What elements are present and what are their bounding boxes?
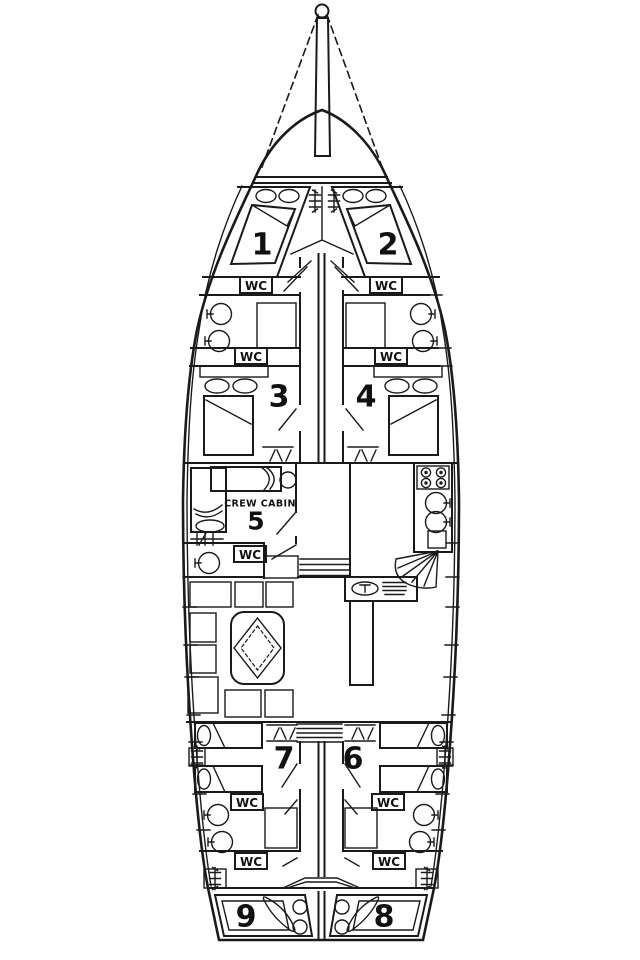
door-swing xyxy=(272,512,296,559)
cabin7-single-bed xyxy=(195,723,262,748)
pillow xyxy=(196,520,224,532)
pillow xyxy=(413,379,437,393)
salon-table xyxy=(231,612,284,684)
cabin-number: 2 xyxy=(378,228,399,263)
stern-steps-chevron xyxy=(283,878,360,888)
cabin-number: 6 xyxy=(343,742,364,777)
wash-basin-icon xyxy=(414,805,439,826)
porthole-icon xyxy=(343,190,363,203)
wash-basin-icon xyxy=(204,805,229,826)
wc-label: WC xyxy=(236,796,258,810)
wash-basin-icon xyxy=(195,553,220,574)
cabins-6-7: 7 6 WC WC xyxy=(189,723,453,876)
shower-grid-icon xyxy=(345,808,377,848)
stove-burner-icon xyxy=(421,468,430,477)
companionway-stairs-icon xyxy=(264,556,298,578)
blanket-fold xyxy=(417,723,429,748)
settee-seat xyxy=(266,582,293,607)
pillow xyxy=(432,769,445,789)
wc-label: WC xyxy=(375,279,397,293)
shower-grid-icon xyxy=(265,808,297,848)
cabin-number: 3 xyxy=(269,380,290,415)
bow-deck-lines xyxy=(253,177,391,183)
grill-lines-icon xyxy=(383,583,406,595)
wash-basin-icon xyxy=(411,304,436,325)
porthole-icon xyxy=(279,190,299,203)
bar-tap-icon xyxy=(360,585,370,592)
pillow xyxy=(198,769,211,789)
forward-bathrooms: WC WC WC WC xyxy=(190,254,439,463)
shower-grid-icon xyxy=(346,303,385,348)
shower-grid-icon xyxy=(257,303,296,348)
wc-label: WC xyxy=(245,279,267,293)
cabin3-double-bed xyxy=(204,396,253,455)
pillow xyxy=(335,920,349,934)
hatch-lines xyxy=(300,559,350,576)
wc-label: WC xyxy=(240,855,262,869)
windlass-ladder-icon xyxy=(310,190,321,212)
settee-seat xyxy=(190,645,216,673)
pillow xyxy=(280,472,296,488)
rigging-line-port xyxy=(262,15,318,167)
companionway-stairs-icon xyxy=(297,724,342,742)
galley-sink-icon xyxy=(426,493,451,514)
steps-icon xyxy=(345,725,375,741)
settee-seat xyxy=(190,582,231,607)
door-swing xyxy=(288,261,354,282)
blanket-curl xyxy=(261,467,274,490)
blanket-fold xyxy=(213,766,225,792)
wash-basin-icon xyxy=(207,304,232,325)
windlass-ladder-icon xyxy=(329,190,340,212)
mast-icon xyxy=(315,18,330,156)
cabin6-single-bed xyxy=(380,766,447,792)
pillow xyxy=(205,379,229,393)
wc-label: WC xyxy=(378,855,400,869)
wash-basin-icon xyxy=(410,832,435,853)
steps-icon xyxy=(348,447,378,463)
cabin-number: 9 xyxy=(236,900,257,935)
settee-seat xyxy=(225,690,261,717)
cabin7-single-bed xyxy=(195,766,262,792)
pillow xyxy=(293,920,307,934)
wc-label: WC xyxy=(240,350,262,364)
pillow xyxy=(198,726,211,746)
galley-sink-icon xyxy=(426,512,451,533)
cabin4-blanket-fold xyxy=(391,400,436,424)
cabin-number: 4 xyxy=(356,380,377,415)
settee-seat xyxy=(265,690,293,717)
stern-section: WC WC 9 8 xyxy=(204,832,438,939)
stern-center-wall xyxy=(319,892,325,938)
cabin-number: 1 xyxy=(252,228,273,263)
wc-label: WC xyxy=(377,796,399,810)
deck-plan-page: 1 2 WC WC WC WC 3 4 xyxy=(0,0,640,960)
blanket-fold xyxy=(213,723,225,748)
stove-burner-icon xyxy=(436,468,445,477)
galley-unit xyxy=(428,531,446,548)
rigging-line-starboard xyxy=(327,15,382,167)
pillow xyxy=(293,900,307,914)
door-swing xyxy=(283,858,359,866)
pillow xyxy=(335,900,349,914)
headboard-shelf xyxy=(374,366,442,377)
stove-burner-icon xyxy=(436,478,445,487)
door-swing xyxy=(284,267,358,291)
cabin4-double-bed xyxy=(389,396,438,455)
steps-icon xyxy=(267,725,297,741)
bow-cabins: 1 2 xyxy=(203,187,439,282)
blanket-curl xyxy=(194,505,222,517)
blanket-curl xyxy=(263,897,294,932)
wash-basin-icon xyxy=(208,832,233,853)
cabin6-single-bed xyxy=(380,723,447,748)
midship: CREW CABIN 5 WC xyxy=(184,463,457,588)
pillow xyxy=(385,379,409,393)
pillow xyxy=(233,379,257,393)
door-swing xyxy=(279,409,363,430)
wc-label: WC xyxy=(239,548,261,562)
salon xyxy=(187,577,450,722)
steps-icon xyxy=(263,447,293,463)
cabin-number: 7 xyxy=(274,742,295,777)
bar-counter-leg xyxy=(350,601,373,685)
stove-burner-icon xyxy=(421,478,430,487)
cabins-3-4: 3 4 xyxy=(200,366,442,463)
porthole-icon xyxy=(366,190,386,203)
cabin-number: 5 xyxy=(247,507,264,536)
cabin-number: 8 xyxy=(374,900,395,935)
settee-seat xyxy=(190,613,216,642)
cabin3-blanket-fold xyxy=(206,400,251,424)
headboard-shelf xyxy=(200,366,268,377)
settee-seat xyxy=(235,582,263,607)
porthole-icon xyxy=(256,190,276,203)
deck-plan-svg: 1 2 WC WC WC WC 3 4 xyxy=(0,0,640,960)
pillow xyxy=(432,726,445,746)
blanket-fold xyxy=(417,766,429,792)
door-swing xyxy=(285,800,357,814)
bar-counter xyxy=(345,577,417,601)
wc-label: WC xyxy=(380,350,402,364)
